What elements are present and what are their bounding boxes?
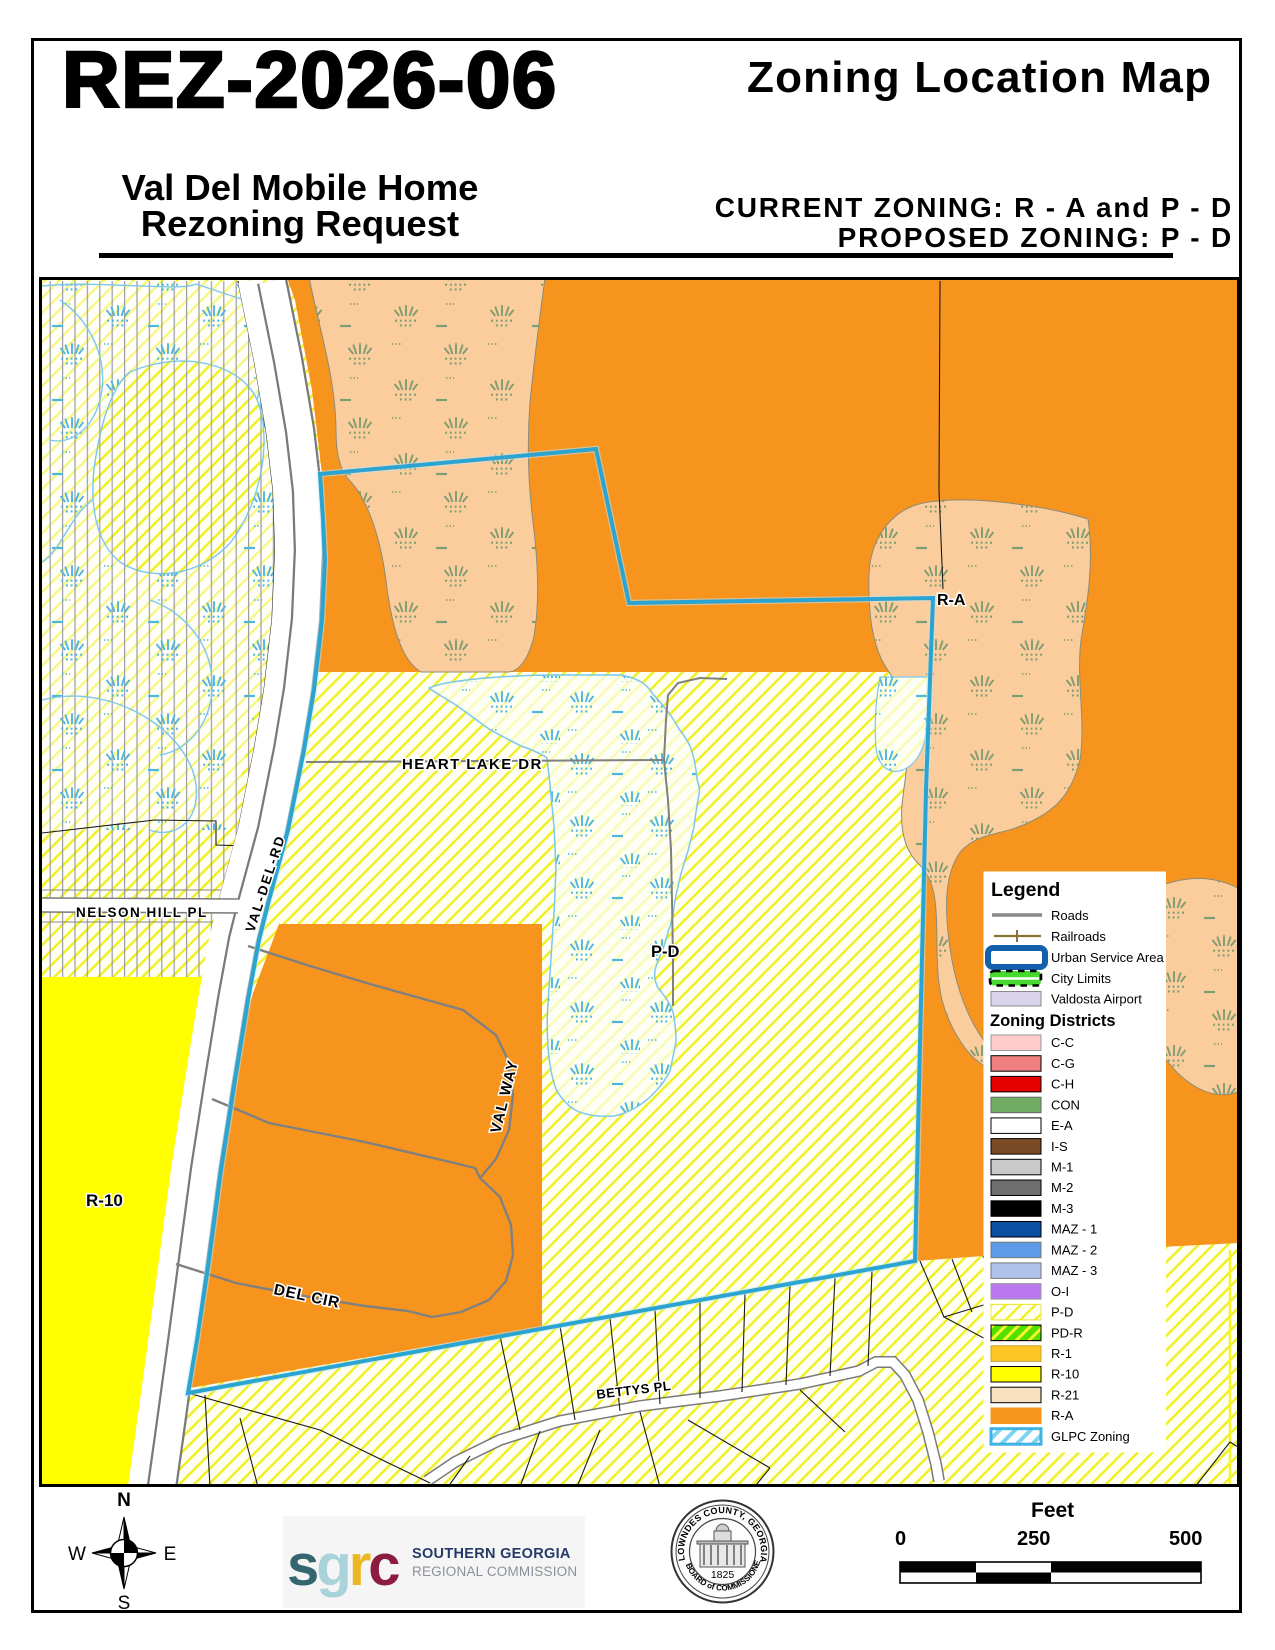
svg-text:HEART LAKE DR: HEART LAKE DR xyxy=(402,756,543,773)
svg-text:M-2: M-2 xyxy=(1051,1180,1073,1195)
svg-text:S: S xyxy=(118,1593,131,1612)
svg-text:MAZ - 3: MAZ - 3 xyxy=(1051,1263,1097,1278)
svg-text:Railroads: Railroads xyxy=(1051,929,1106,944)
svg-text:R-21: R-21 xyxy=(1051,1387,1079,1402)
svg-text:R-10: R-10 xyxy=(1051,1367,1079,1382)
svg-text:I-S: I-S xyxy=(1051,1139,1068,1154)
svg-text:MAZ - 2: MAZ - 2 xyxy=(1051,1242,1097,1257)
svg-text:C-C: C-C xyxy=(1051,1035,1074,1050)
svg-text:GLPC Zoning: GLPC Zoning xyxy=(1051,1429,1130,1444)
svg-text:PD-R: PD-R xyxy=(1051,1325,1083,1340)
svg-text:M-1: M-1 xyxy=(1051,1160,1073,1175)
svg-text:R-10: R-10 xyxy=(86,1191,123,1210)
svg-text:E-A: E-A xyxy=(1051,1118,1073,1133)
svg-text:W: W xyxy=(68,1544,86,1565)
svg-text:C-G: C-G xyxy=(1051,1056,1075,1071)
svg-text:P-D: P-D xyxy=(651,943,680,961)
svg-text:Roads: Roads xyxy=(1051,908,1089,923)
svg-text:Valdosta Airport: Valdosta Airport xyxy=(1051,992,1142,1007)
svg-text:C-H: C-H xyxy=(1051,1077,1074,1092)
svg-text:MAZ - 1: MAZ - 1 xyxy=(1051,1222,1097,1237)
svg-text:N: N xyxy=(117,1492,131,1511)
svg-text:Zoning Districts: Zoning Districts xyxy=(990,1012,1116,1030)
svg-text:NELSON HILL PL: NELSON HILL PL xyxy=(76,905,208,920)
svg-text:City Limits: City Limits xyxy=(1051,971,1111,986)
svg-text:O-I: O-I xyxy=(1051,1284,1069,1299)
svg-text:E: E xyxy=(164,1544,177,1565)
svg-text:CON: CON xyxy=(1051,1097,1080,1112)
svg-text:M-3: M-3 xyxy=(1051,1201,1073,1216)
svg-text:R-1: R-1 xyxy=(1051,1346,1072,1361)
svg-text:Urban Service Area: Urban Service Area xyxy=(1051,950,1164,965)
svg-text:R-A: R-A xyxy=(1051,1408,1074,1423)
svg-text:1825: 1825 xyxy=(711,1569,735,1581)
svg-text:R-A: R-A xyxy=(937,592,966,609)
svg-text:Legend: Legend xyxy=(991,879,1060,901)
svg-text:P-D: P-D xyxy=(1051,1305,1073,1320)
